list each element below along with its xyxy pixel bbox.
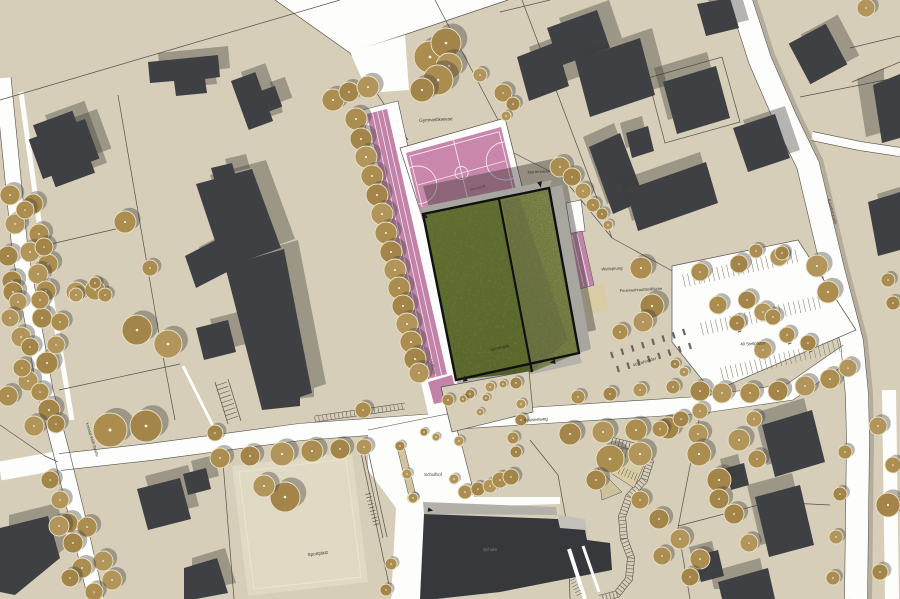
svg-text:Schulhof: Schulhof — [424, 472, 443, 477]
svg-text:Schule: Schule — [483, 547, 498, 553]
